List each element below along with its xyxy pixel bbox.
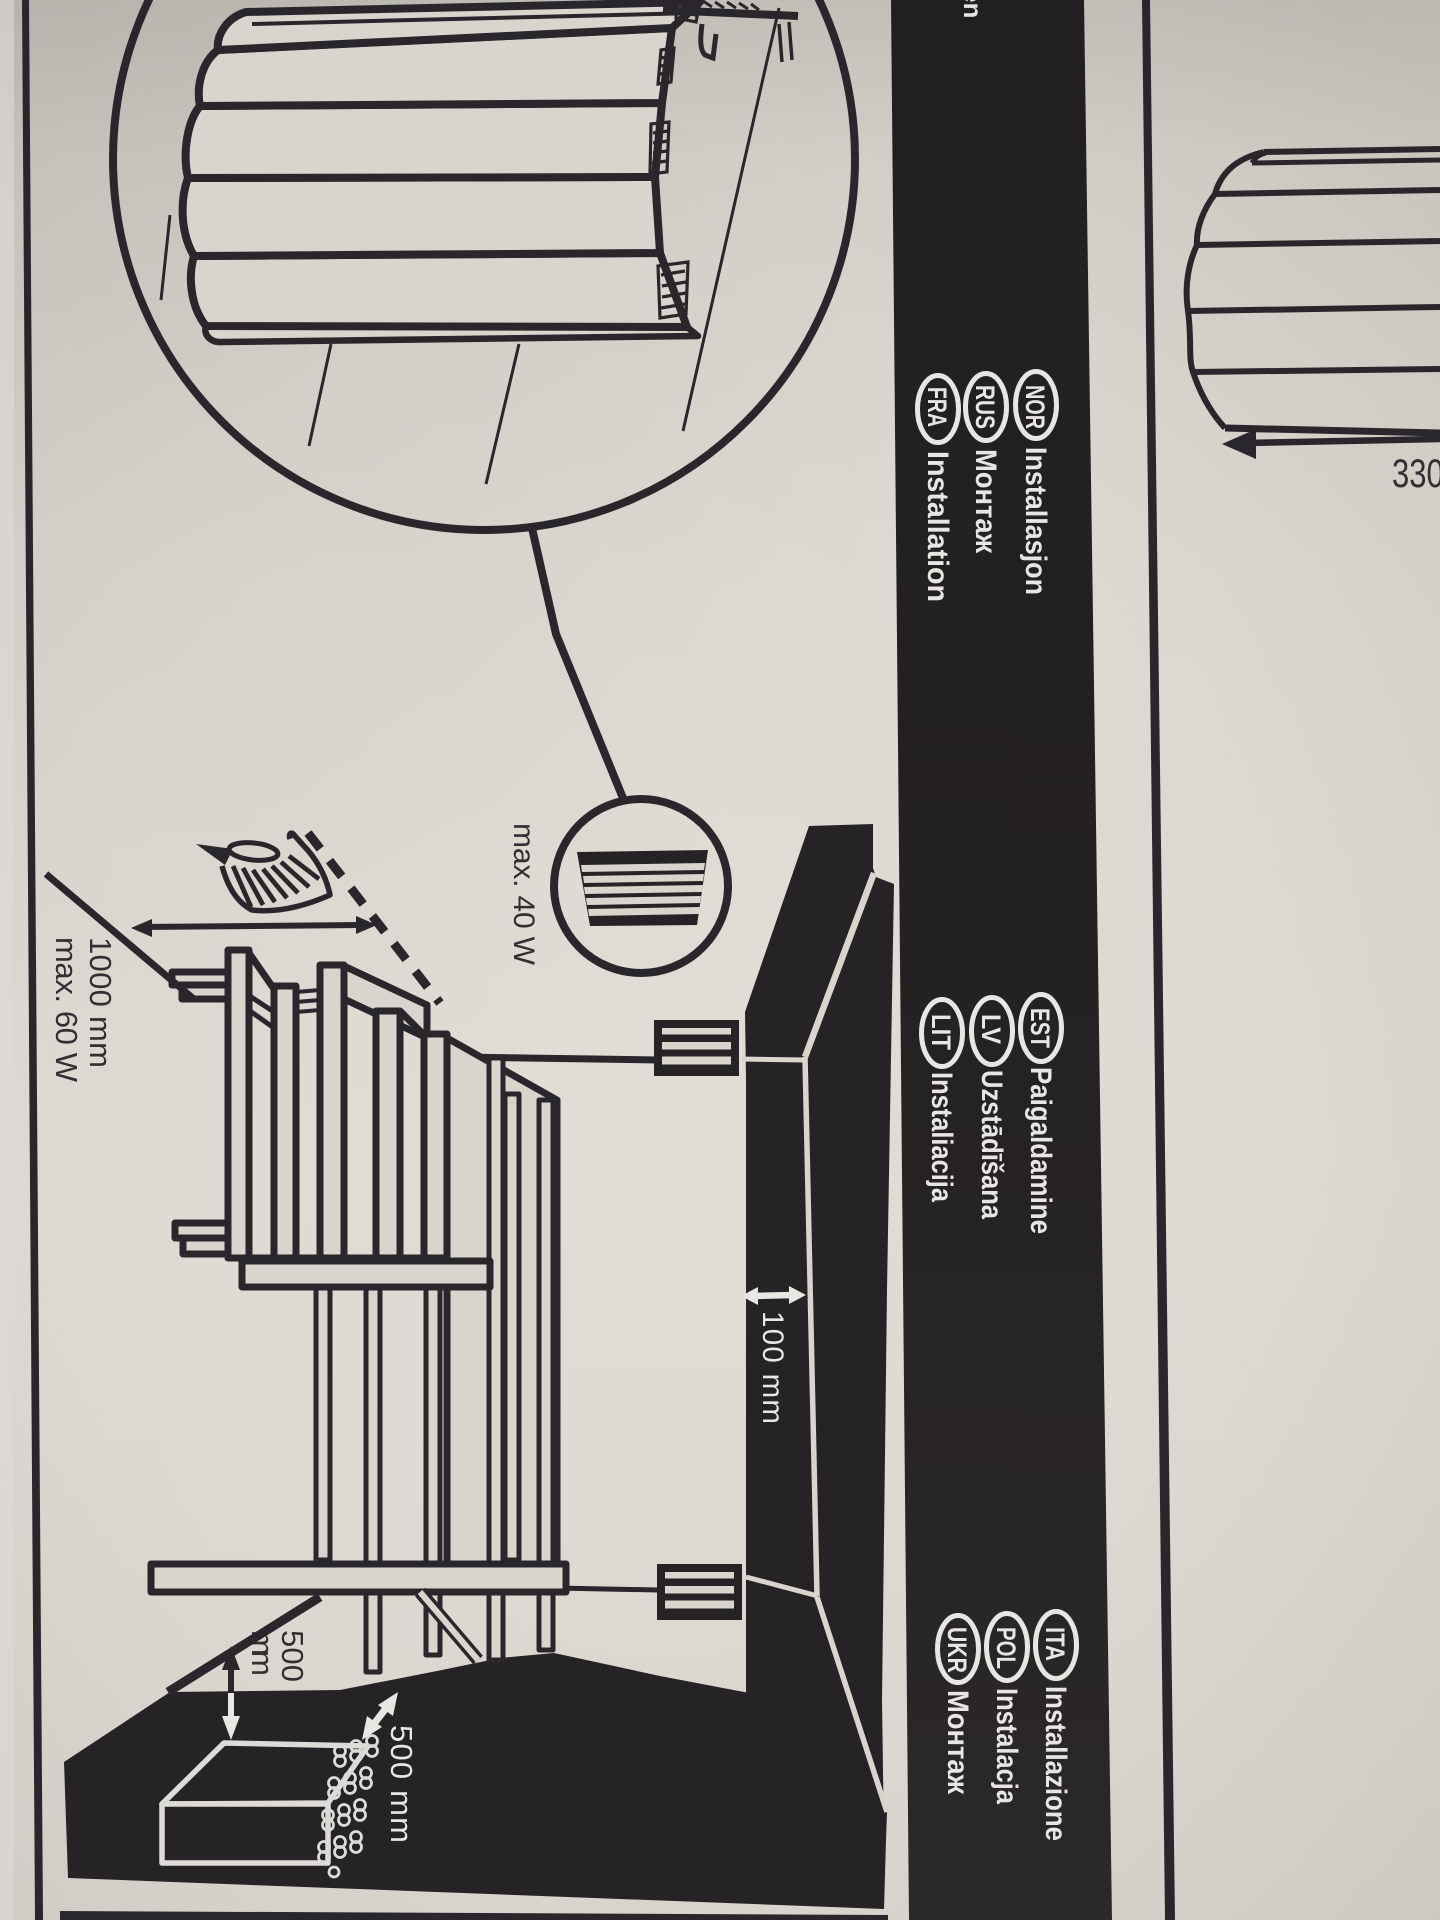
svg-text:Uzstādīšana: Uzstādīšana	[975, 1070, 1008, 1219]
svg-text:Instaliacija: Instaliacija	[925, 1072, 958, 1202]
svg-text:Installasjon: Installasjon	[1019, 447, 1052, 595]
svg-text:1000 mm: 1000 mm	[83, 937, 118, 1068]
svg-text:RUS: RUS	[970, 385, 1000, 429]
svg-text:UKR: UKR	[942, 1627, 972, 1673]
svg-text:LIT: LIT	[926, 1014, 956, 1050]
svg-text:Paigaldamine: Paigaldamine	[1024, 1067, 1057, 1234]
svg-text:Монтаж: Монтаж	[941, 1690, 974, 1795]
svg-text:max. 60 W: max. 60 W	[49, 937, 84, 1083]
svg-text:100 mm: 100 mm	[756, 1311, 789, 1424]
svg-text:NOR: NOR	[1020, 385, 1050, 429]
svg-text:FRA: FRA	[922, 387, 952, 427]
svg-text:Монтаж: Монтаж	[969, 449, 1002, 554]
svg-text:500 mm: 500 mm	[384, 1725, 419, 1843]
svg-text:ITA: ITA	[1040, 1627, 1070, 1661]
svg-text:max. 40 W: max. 40 W	[507, 823, 540, 966]
svg-text:Installation: Installation	[921, 451, 954, 602]
svg-text:LV: LV	[976, 1014, 1006, 1044]
svg-text:EST: EST	[1025, 1008, 1055, 1048]
svg-text:330 mm: 330 mm	[1392, 452, 1440, 496]
svg-text:Instalacja: Instalacja	[990, 1688, 1023, 1804]
svg-text:Installazione: Installazione	[1039, 1686, 1072, 1841]
svg-text:en: en	[958, 0, 988, 18]
svg-text:POL: POL	[991, 1627, 1021, 1669]
